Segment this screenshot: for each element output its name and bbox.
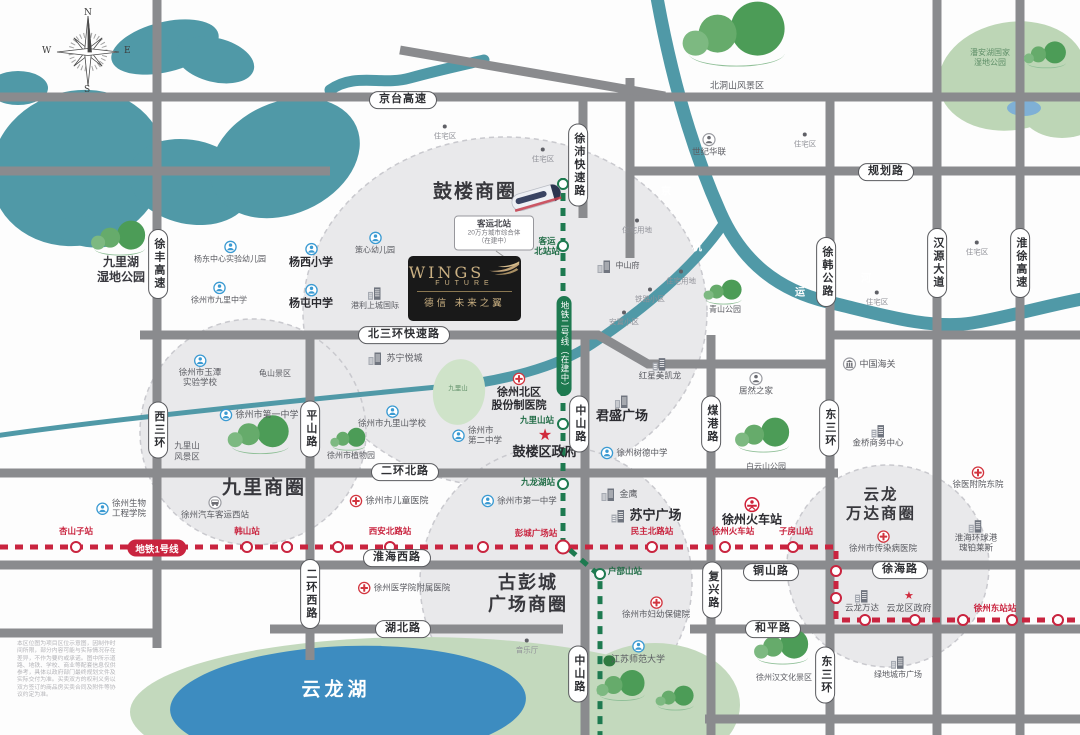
poi-school: 徐州市第二中学 — [452, 426, 502, 446]
road-label-pill: 徐丰高速 — [148, 229, 168, 299]
metro-station-label: 九龙湖站 — [521, 478, 555, 488]
poi-label: 徐州北区股份制医院 — [492, 386, 547, 411]
poi-hospital: 徐州市妇幼保健院 — [622, 596, 690, 620]
poi-label: 中国海关 — [859, 359, 895, 369]
metro-station-label-line: 韩山站 — [234, 527, 260, 537]
park-label: 潘安湖国家湿地公园 — [970, 48, 1010, 68]
park-label-line: 九里山 — [448, 385, 468, 393]
park-label-line: 湿地公园 — [97, 270, 145, 285]
poi-label-line: 徐州树德中学 — [616, 448, 667, 458]
district-label: 鼓楼商圈 — [433, 182, 517, 205]
hospital-icon — [513, 372, 526, 385]
area-label: 铁路小区 — [635, 294, 665, 305]
park-label-line: 湿地公园 — [970, 58, 1010, 68]
hospital-icon — [971, 466, 984, 479]
school-icon — [452, 430, 465, 443]
disclaimer-line: 双方签订的商品房买卖合同及附件等协 — [17, 685, 143, 692]
compass-s-label: S — [84, 85, 90, 95]
metro-station-label-line: 西安北路站 — [369, 527, 412, 537]
poi-building: 中山府 — [597, 259, 640, 273]
poi-gbus: 徐州汽车客运西站 — [181, 496, 249, 521]
park-label-line: 风景区 — [174, 451, 200, 462]
road-label-pill: 规划路 — [858, 163, 914, 181]
lake-label: 云龙湖 — [301, 675, 370, 702]
gold-divider — [417, 291, 512, 292]
poi-label-line: 世纪华联 — [692, 148, 726, 158]
river-name-char: 杭 — [692, 239, 702, 254]
metro-station-label: 徐州东站站 — [974, 604, 1017, 614]
building-icon — [870, 424, 886, 438]
road-label-pill: 和平路 — [745, 620, 801, 638]
poi-label-line: 徐州市第一中学 — [235, 410, 298, 420]
area-dot-label: 安置小区 — [609, 311, 639, 328]
area-dot-label: 铁路小区 — [635, 288, 665, 305]
poi-hospital: 徐州市儿童医院 — [349, 495, 428, 508]
district-label: 古彭城广场商圈 — [488, 572, 568, 615]
metro-station-label: 杏山子站 — [59, 527, 93, 537]
area-label: 安置小区 — [609, 317, 639, 328]
park-label-line: 九里湖 — [97, 255, 145, 270]
metro-station-marker — [859, 614, 871, 626]
metro-station-marker — [556, 540, 571, 555]
disclaimer-line: 议约定为准。 — [17, 692, 143, 699]
poi-label-line: 徐州市九里山学校 — [358, 419, 426, 429]
area-dot-label: 住宅区 — [866, 291, 889, 308]
school-icon — [96, 503, 109, 516]
trees-icon — [597, 670, 648, 706]
poi-label: 徐州市传染病医院 — [849, 544, 917, 554]
poi-label-line: 绿地城市广场 — [874, 670, 922, 679]
park-label: 九里山风景区 — [174, 440, 200, 461]
poi-label: 君盛广场 — [596, 409, 648, 424]
park-label-line: 九里山 — [174, 440, 200, 451]
poi-label-line: 君盛广场 — [596, 409, 648, 424]
metro-station-label-line: 户部山站 — [608, 567, 642, 577]
dot-icon — [975, 241, 979, 245]
metro-line1-badge: 地铁1号线 — [127, 540, 186, 557]
poi-label-line: 苏宁广场 — [629, 509, 681, 524]
metro-station-label-line: 彭城广场站 — [515, 529, 558, 539]
road-label-pill: 复兴路 — [702, 562, 722, 619]
building-icon — [367, 351, 383, 365]
area-label: 住宅区 — [434, 131, 457, 142]
poi-label: 苏宁广场 — [629, 509, 681, 524]
metro-station-marker — [281, 541, 293, 553]
area-dot-label: 音乐厅 — [516, 639, 539, 656]
road-label-pill: 煤港路 — [701, 396, 721, 453]
building-icon — [597, 259, 613, 273]
poi-school: 策心幼儿园 — [355, 231, 395, 254]
poi-label: 苏宁悦城 — [386, 353, 422, 363]
metro-station-label: 户部山站 — [608, 567, 642, 577]
gperson-icon — [749, 372, 763, 386]
poi-label-line: 徐州市传染病医院 — [849, 544, 917, 554]
park-label: 九里湖湿地公园 — [97, 255, 145, 285]
area-dot-label: 住宅区 — [434, 125, 457, 142]
area-label: 住宅用地 — [666, 276, 696, 287]
district-label: 云龙万达商圈 — [846, 486, 916, 523]
poi-label: 云龙区政府 — [886, 603, 931, 613]
dot-icon — [541, 148, 545, 152]
poi-building: 金鹰 — [600, 487, 637, 501]
area-label: 住宅区 — [532, 154, 555, 165]
metro-station-marker — [1052, 614, 1064, 626]
poi-building: 苏宁广场 — [610, 509, 681, 524]
metro-station-label-line: 杏山子站 — [59, 527, 93, 537]
school-icon — [224, 240, 237, 253]
dot-icon — [648, 288, 652, 292]
rail-icon — [744, 497, 760, 513]
poi-label: 徐州市第一中学 — [497, 496, 557, 506]
poi-label-line: 红星美凯龙 — [639, 372, 682, 382]
poi-label: 杨东中心实验幼儿园 — [194, 254, 266, 263]
poi-label: 金桥商务中心 — [852, 439, 903, 449]
poi-label-line: 徐州医学院附属医院 — [374, 583, 451, 593]
road-label-pill: 中山路 — [568, 646, 588, 703]
dot-icon — [803, 133, 807, 137]
poi-label: 杨西小学 — [289, 257, 333, 270]
metro-station-label: 韩山站 — [234, 527, 260, 537]
dot-icon — [679, 270, 683, 274]
hospital-icon — [349, 495, 362, 508]
building-icon — [890, 655, 906, 669]
poi-label: 徐州市九里山学校 — [358, 419, 426, 429]
dot-icon — [525, 639, 529, 643]
road-label-pill: 平山路 — [300, 401, 320, 458]
park-label: 青山公园 — [709, 305, 741, 315]
poi-label: 金鹰 — [619, 489, 637, 499]
poi-building: 云龙万达 — [845, 589, 879, 614]
road-label-pill: 汉源大道 — [927, 228, 947, 298]
compass-rose: N W E S — [50, 8, 126, 96]
metro-station-label: 九里山站 — [520, 416, 554, 426]
poi-label-line: 中山府 — [616, 261, 640, 270]
poi-label: 徐州市第一中学 — [235, 410, 298, 420]
metro-station-marker — [557, 478, 569, 490]
park-label: 徐州市植物园 — [327, 451, 375, 461]
metro-station-marker — [1006, 614, 1018, 626]
poi-hospital: 徐州医学院附属医院 — [358, 582, 451, 595]
metro-station-marker — [594, 568, 606, 580]
metro-station-label-line: 民主北路站 — [631, 527, 674, 537]
poi-label: 鼓楼区政府 — [512, 445, 577, 460]
park-label: 九里山 — [448, 385, 468, 393]
metro-station-marker — [557, 418, 569, 430]
district-label-line: 鼓楼商圈 — [433, 182, 517, 205]
poi-building: 金桥商务中心 — [852, 424, 903, 449]
district-label-line: 万达商圈 — [846, 505, 916, 524]
park-label: 白云山公园 — [746, 462, 786, 472]
metro-station-marker — [241, 541, 253, 553]
school-icon — [631, 640, 644, 653]
poi-label: 徐州医学院附属医院 — [374, 583, 451, 593]
metro-station-label: 徐州火车站 — [712, 527, 755, 537]
poi-label: 徐州树德中学 — [616, 448, 667, 458]
metro-station-label: 客运北站站 — [534, 237, 560, 257]
road-label-pill: 徐沛快速路 — [568, 124, 588, 207]
poi-label-line: 工程学院 — [112, 509, 146, 519]
poi-hospital: 徐州北区股份制医院 — [492, 372, 547, 411]
poi-label-line: 第二中学 — [468, 436, 502, 446]
poi-school: 徐州树德中学 — [600, 447, 667, 460]
area-label: 住宅区 — [966, 247, 989, 258]
metro-station-marker — [719, 541, 731, 553]
road-label-pill: 淮徐高速 — [1010, 228, 1030, 298]
poi-label-line: 股份制医院 — [492, 399, 547, 412]
metro-station-label: 西安北路站 — [369, 527, 412, 537]
poi-gperson: 世纪华联 — [692, 133, 726, 158]
road-label-pill: 二环北路 — [371, 463, 439, 481]
poi-label-line: 云龙区政府 — [886, 603, 931, 613]
poi-label-line: 苏宁悦城 — [386, 353, 422, 363]
metro-line2-badge: 地铁二号线（在建中） — [557, 296, 572, 396]
poi-label: 杨屯中学 — [289, 298, 333, 311]
metro-station-label: 民主北路站 — [631, 527, 674, 537]
metro-station-marker — [477, 541, 489, 553]
park-label: 北洞山风景区 — [710, 80, 764, 91]
metro-station-marker — [332, 541, 344, 553]
north-bus-station-callout: 客运北站 20万方城市综合体 （在建中） — [454, 216, 534, 251]
metro-station-label-line: 北站站 — [534, 247, 560, 257]
poi-building: 淮海环球港瑰铂莱斯 — [955, 519, 998, 554]
district-label-line: 云龙 — [846, 486, 916, 505]
metro-station-label: 彭城广场站 — [515, 529, 558, 539]
dot-icon — [622, 311, 626, 315]
dot-icon — [635, 219, 639, 223]
poi-label: 港利上城国际 — [351, 301, 399, 310]
poi-label: 策心幼儿园 — [355, 245, 395, 254]
project-logo-block: WINGS FUTURE 德信 未来之翼 — [408, 256, 521, 321]
road-label-pill: 淮海西路 — [363, 549, 431, 567]
road-label-pill: 湖北路 — [375, 620, 431, 638]
area-dot-label: 住宅区 — [794, 133, 817, 150]
poi-label: 淮海环球港瑰铂莱斯 — [955, 534, 998, 554]
poi-school: 杨东中心实验幼儿园 — [194, 240, 266, 263]
poi-label: 徐州生物工程学院 — [112, 499, 146, 519]
trees-icon — [1024, 41, 1068, 72]
poi-label: 云龙万达 — [845, 604, 879, 614]
poi-rail: 徐州火车站 — [722, 497, 782, 528]
poi-hospital: 徐医附院东院 — [952, 466, 1003, 490]
compass-star-icon — [50, 8, 126, 96]
poi-label: 中山府 — [616, 261, 640, 270]
poi-label: 徐州市玉潭实验学校 — [179, 368, 222, 388]
gbus-icon — [208, 496, 222, 510]
poi-school: 杨屯中学 — [289, 284, 333, 311]
poi-school: 徐州生物工程学院 — [96, 499, 146, 519]
park-label: 徐州汉文化景区 — [756, 673, 812, 683]
poi-building: 红星美凯龙 — [639, 357, 682, 382]
dot-icon — [443, 125, 447, 129]
poi-label-line: 金鹰 — [619, 489, 637, 499]
park-label-line: 徐州汉文化景区 — [756, 673, 812, 683]
poi-building: 绿地城市广场 — [874, 655, 922, 679]
disclaimer-line: 间所限，部分内容可能与实际情况存在 — [17, 648, 143, 655]
poi-school: 杨西小学 — [289, 243, 333, 270]
school-icon — [305, 284, 318, 297]
road-label-pill: 京台高速 — [369, 91, 437, 109]
road-label-pill: 二环西路 — [300, 559, 320, 629]
area-label: 音乐厅 — [516, 645, 539, 656]
poi-label-line: 中国海关 — [859, 359, 895, 369]
poi-gcustoms: 中国海关 — [842, 357, 895, 371]
project-name-cn: 德信 未来之翼 — [408, 295, 521, 309]
road-label-pill: 徐海路 — [872, 561, 928, 579]
poi-label-line: 杨西小学 — [289, 257, 333, 270]
school-icon — [600, 447, 613, 460]
building-icon — [652, 357, 668, 371]
poi-school: 徐州市玉潭实验学校 — [179, 354, 222, 388]
star-icon: ★ — [538, 428, 552, 444]
metro-station-label-line: 九龙湖站 — [521, 478, 555, 488]
area-dot-label: 住宅区 — [532, 148, 555, 165]
metro-station-label-line: 徐州东站站 — [974, 604, 1017, 614]
dot-icon — [875, 291, 879, 295]
star-icon: ★ — [904, 591, 914, 602]
poi-label: 徐州市妇幼保健院 — [622, 610, 690, 620]
poi-label: 红星美凯龙 — [639, 372, 682, 382]
disclaimer-line: 实际交付为准。买卖双方的权利义务以 — [17, 677, 143, 684]
school-icon — [305, 243, 318, 256]
school-icon — [369, 231, 382, 244]
metro-station-marker — [70, 541, 82, 553]
metro-station-marker — [830, 565, 842, 577]
gperson-icon — [702, 133, 716, 147]
school-icon — [213, 281, 226, 294]
poi-label-line: 杨屯中学 — [289, 298, 333, 311]
poi-label: 徐医附院东院 — [952, 480, 1003, 490]
poi-label-line: 徐医附院东院 — [952, 480, 1003, 490]
poi-label: 徐州汽车客运西站 — [181, 511, 249, 521]
poi-label: 绿地城市广场 — [874, 670, 922, 679]
metro-station-label-line: 徐州火车站 — [712, 527, 755, 537]
park-label-line: 青山公园 — [709, 305, 741, 315]
metro-station-marker — [909, 614, 921, 626]
location-map: N W E S WINGS FUTURE 德信 未来之翼 客运北站 20万方城市… — [0, 0, 1080, 735]
poi-label-line: 徐州市第一中学 — [497, 496, 557, 506]
school-icon — [385, 405, 398, 418]
park-label: 龟山景区 — [259, 369, 291, 379]
poi-hospital: 徐州市传染病医院 — [849, 530, 917, 554]
building-icon — [367, 286, 383, 300]
poi-label-line: 徐州市妇幼保健院 — [622, 610, 690, 620]
poi-label-line: 徐州市儿童医院 — [365, 496, 428, 506]
metro-station-label-line: 子房山站 — [779, 527, 813, 537]
poi-label-line: 港利上城国际 — [351, 301, 399, 310]
area-dot-label: 住宅用地 — [622, 219, 652, 236]
park-label-line: 徐州市植物园 — [327, 451, 375, 461]
park-label-line: 北洞山风景区 — [710, 80, 764, 91]
poi-star: ★云龙区政府 — [886, 591, 931, 613]
poi-school: 徐州市第一中学 — [481, 495, 557, 508]
poi-label-line: 策心幼儿园 — [355, 245, 395, 254]
building-icon — [600, 487, 616, 501]
district-label-line: 广场商圈 — [488, 594, 568, 616]
park-label-line: 龟山景区 — [259, 369, 291, 379]
disclaimer-line: 差异，不作为要约或承诺。图中所示道 — [17, 656, 143, 663]
school-icon — [481, 495, 494, 508]
poi-label: 江苏师范大学 — [611, 654, 665, 664]
poi-gperson: 居然之家 — [739, 372, 773, 397]
poi-school: 徐州市第一中学 — [219, 409, 298, 422]
poi-building: 苏宁悦城 — [367, 351, 422, 365]
area-label: 住宅用地 — [622, 225, 652, 236]
building-icon — [854, 589, 870, 603]
hospital-icon — [876, 530, 889, 543]
area-dot-label: 住宅用地 — [666, 270, 696, 287]
metro-station-marker — [830, 592, 842, 604]
poi-building: 港利上城国际 — [351, 286, 399, 310]
building-icon — [610, 509, 626, 523]
poi-label: 徐州市儿童医院 — [365, 496, 428, 506]
river-name-char: 河 — [861, 270, 871, 285]
building-icon — [968, 519, 984, 533]
poi-label: 居然之家 — [739, 387, 773, 397]
school-icon — [219, 409, 232, 422]
trees-icon — [656, 686, 697, 715]
wing-icon — [486, 259, 520, 279]
road-label-pill: 西三环 — [148, 402, 168, 459]
road-label-pill: 铜山路 — [743, 563, 799, 581]
road-label-pill: 东三环 — [815, 647, 835, 704]
compass-n-label: N — [84, 8, 92, 18]
river-name-char: 运 — [795, 284, 805, 299]
poi-label: 世纪华联 — [692, 148, 726, 158]
callout-title: 客运北站 — [455, 219, 533, 230]
compass-e-label: E — [124, 46, 131, 56]
metro-station-label: 子房山站 — [779, 527, 813, 537]
metro-station-marker — [646, 541, 658, 553]
metro-station-marker — [787, 541, 799, 553]
gcustoms-icon — [842, 357, 856, 371]
poi-label-line: 杨东中心实验幼儿园 — [194, 254, 266, 263]
poi-label-line: 瑰铂莱斯 — [955, 544, 998, 554]
area-label: 住宅区 — [866, 297, 889, 308]
callout-line3: （在建中） — [455, 238, 533, 246]
compass-w-label: W — [42, 46, 51, 56]
road-label-pill: 东三环 — [819, 400, 839, 457]
poi-star: ★鼓楼区政府 — [512, 428, 577, 460]
poi-school: 徐州市九里中学 — [191, 281, 247, 304]
poi-school: 江苏师范大学 — [611, 640, 665, 664]
poi-label-line: 鼓楼区政府 — [512, 445, 577, 460]
poi-label-line: 金桥商务中心 — [852, 439, 903, 449]
poi-label: 徐州市九里中学 — [191, 295, 247, 304]
park-label-line: 潘安湖国家 — [970, 48, 1010, 58]
area-label: 住宅区 — [794, 139, 817, 150]
poi-label-line: 实验学校 — [179, 378, 222, 388]
poi-label-line: 徐州北区 — [492, 386, 547, 399]
poi-school: 徐州市九里山学校 — [358, 405, 426, 429]
trees-icon — [228, 415, 293, 461]
hospital-icon — [649, 596, 662, 609]
poi-label-line: 居然之家 — [739, 387, 773, 397]
road-label-pill: 徐韩公路 — [816, 237, 836, 307]
school-icon — [193, 354, 206, 367]
poi-label-line: 江苏师范大学 — [611, 654, 665, 664]
metro-station-marker — [957, 614, 969, 626]
trees-icon — [735, 418, 793, 459]
district-label-line: 古彭城 — [488, 572, 568, 594]
river-name-char: 京 — [661, 183, 671, 198]
building-icon — [614, 394, 630, 408]
poi-label-line: 徐州汽车客运西站 — [181, 511, 249, 521]
map-disclaimer: 本区位图为项目区位示意图，因制作时间所限，部分内容可能与实际情况存在差异，不作为… — [17, 641, 143, 699]
area-dot-label: 住宅区 — [966, 241, 989, 258]
park-label-line: 白云山公园 — [746, 462, 786, 472]
hospital-icon — [358, 582, 371, 595]
poi-building: 君盛广场 — [596, 394, 648, 424]
